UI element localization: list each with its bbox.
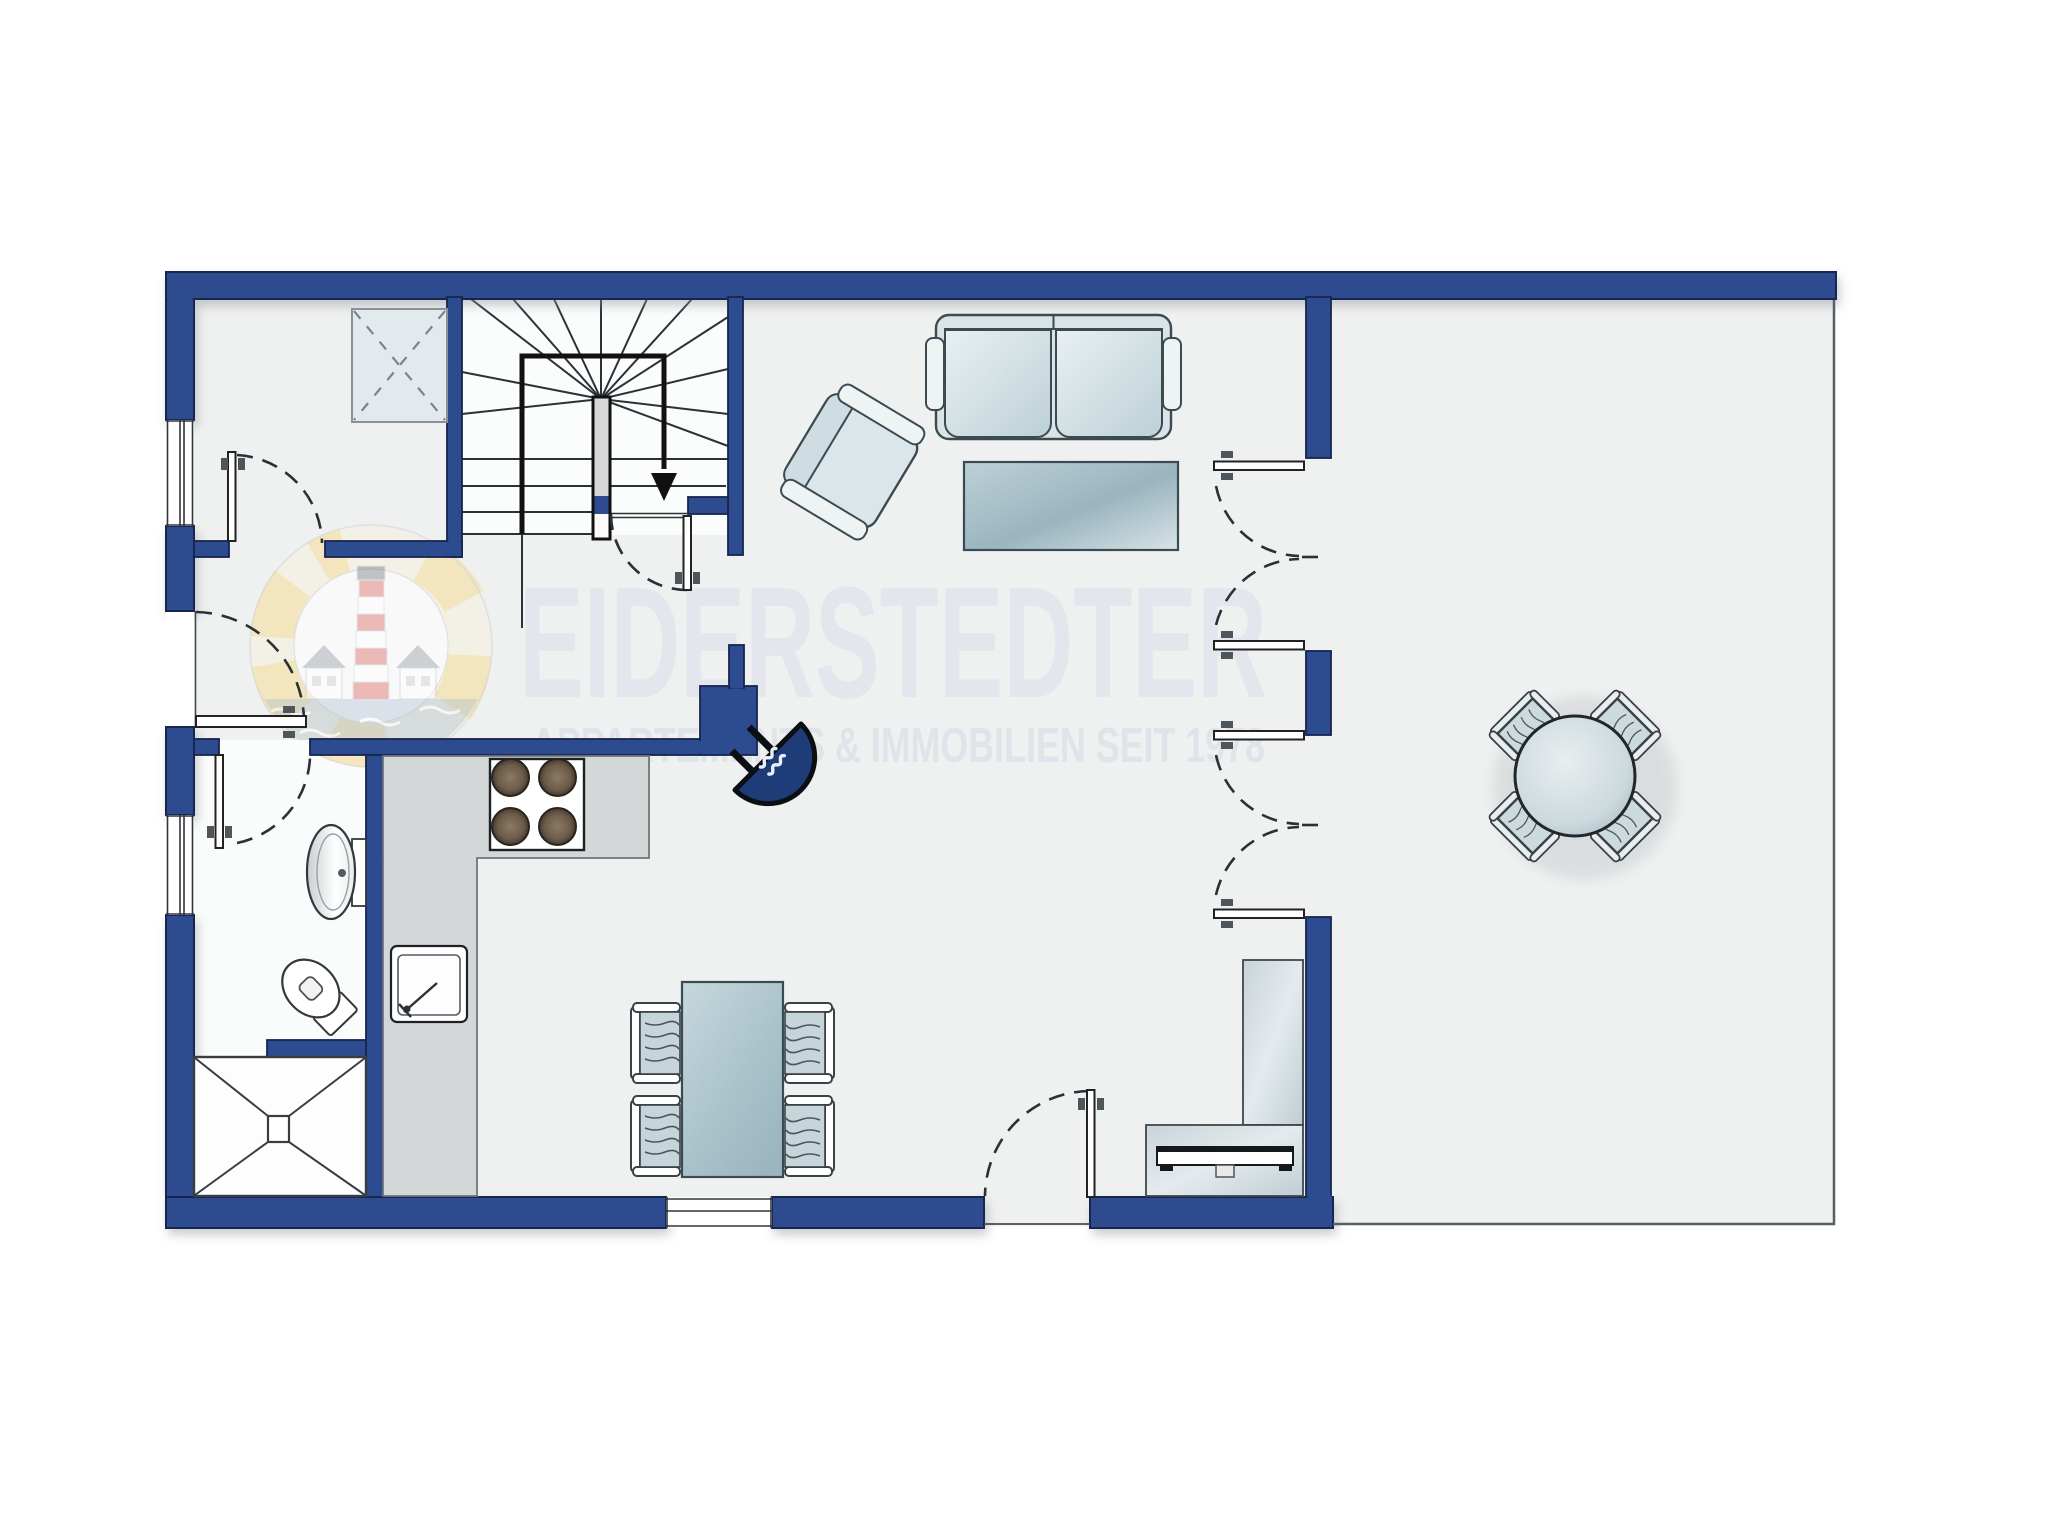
- svg-text:EIDERSTEDTER: EIDERSTEDTER: [519, 555, 1267, 731]
